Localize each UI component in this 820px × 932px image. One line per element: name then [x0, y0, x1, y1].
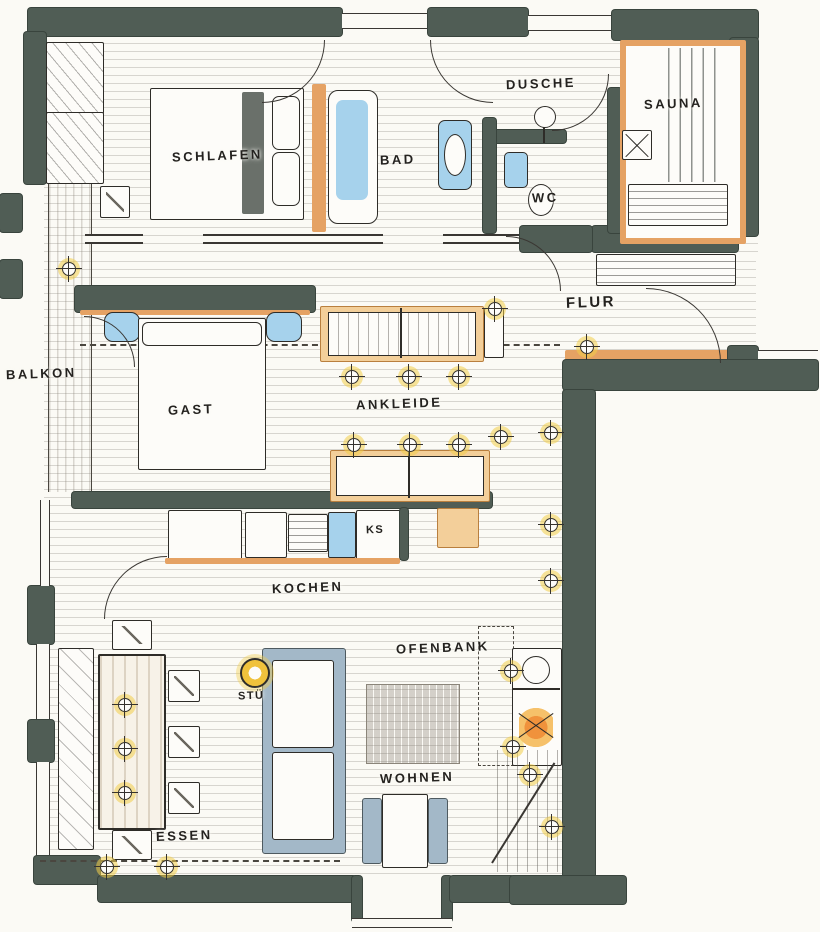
wall-bottom-1: [98, 876, 356, 902]
kitchen-cabinet-1: [168, 510, 242, 560]
stove-divider: [512, 688, 560, 690]
bed-gast-pillows: [142, 322, 262, 346]
dining-chair-head: [112, 620, 152, 650]
floor-plan: SCHLAFEN BAD DUSCHE SAUNA WC FLUR BALKON…: [0, 0, 820, 932]
ceiling-light: [504, 664, 518, 678]
dining-chair-1: [168, 670, 200, 702]
flur-sideboard: [596, 254, 736, 286]
wall-L-horizontal: [563, 360, 818, 390]
label-stuetze: STÜ: [238, 690, 265, 703]
room-label-wohnen: WOHNEN: [380, 769, 455, 787]
wall-corridor-2: [203, 234, 383, 244]
terrace-dash-line: [40, 860, 340, 862]
window-top-2: [528, 15, 612, 31]
bathtub-water: [336, 100, 368, 200]
wardrobe-ankleide-inner: [328, 312, 476, 356]
wood-wall-bad: [312, 84, 326, 232]
sauna-heater: [622, 130, 652, 160]
pillow-2: [272, 152, 300, 206]
dresser-divider: [408, 452, 410, 498]
ceiling-light: [580, 340, 594, 354]
chair-wohnen-1: [362, 798, 382, 864]
room-label-ankleide: ANKLEIDE: [356, 394, 443, 412]
ceiling-light: [523, 768, 537, 782]
pillow-1: [272, 96, 300, 150]
balcony-parapet-1: [0, 194, 22, 232]
wall-left-low-2: [28, 720, 54, 762]
ceiling-light: [118, 698, 132, 712]
ceiling-light: [345, 370, 359, 384]
kitchen-divider-wall: [400, 508, 408, 560]
room-label-wc: WC: [532, 190, 559, 206]
wall-bottom-2: [450, 876, 514, 902]
room-label-sauna: SAUNA: [644, 95, 703, 112]
wall-L-vertical: [563, 390, 595, 882]
ceiling-light: [544, 426, 558, 440]
room-label-balkon: BALKON: [6, 365, 77, 382]
room-label-kochen: KOCHEN: [272, 579, 344, 596]
dresser-inner: [336, 456, 484, 496]
room-label-bad: BAD: [380, 151, 416, 167]
room-label-dusche: DUSCHE: [506, 75, 576, 92]
dining-bench: [58, 648, 94, 850]
dining-chair-2: [168, 726, 200, 758]
room-label-essen: ESSEN: [156, 827, 213, 844]
window-left-3: [40, 500, 50, 586]
cooktop: [288, 514, 328, 552]
side-table-wohnen: [382, 794, 428, 868]
dining-chair-foot: [112, 830, 152, 860]
label-ks: KS: [366, 524, 385, 537]
stove-burner: [522, 656, 550, 684]
wall-top-right: [612, 10, 758, 40]
ceiling-light: [506, 740, 520, 754]
ceiling-light: [160, 860, 174, 874]
kitchen-wood-cabinet: [437, 508, 479, 548]
wall-corridor-1: [85, 234, 143, 244]
washbasin-bowl: [444, 134, 466, 176]
rug: [366, 684, 460, 764]
wall-wc-top: [490, 130, 566, 143]
support-column: [240, 658, 270, 688]
chair-wohnen-2: [428, 798, 448, 864]
counter-edge: [165, 558, 400, 564]
ceiling-light: [544, 574, 558, 588]
kitchen-cabinet-2: [245, 512, 287, 558]
nightstand-schlafen: [100, 186, 130, 218]
ceiling-light: [452, 438, 466, 452]
wardrobe-schlafen-2: [46, 112, 104, 184]
wall-bottom-right-block: [510, 876, 626, 904]
stove-flames: [519, 700, 553, 750]
window-bay: [352, 918, 452, 928]
window-top-1: [342, 13, 428, 29]
wardrobe-divider: [400, 308, 402, 358]
ceiling-light: [402, 370, 416, 384]
ceiling-light: [118, 786, 132, 800]
kitchen-sink: [328, 512, 356, 558]
wc-sink: [504, 152, 528, 188]
gast-side-table-2: [266, 312, 302, 342]
ceiling-light: [494, 430, 508, 444]
shower-stem: [543, 127, 545, 143]
wardrobe-schlafen-1: [46, 42, 104, 114]
wall-left-top: [24, 32, 46, 184]
room-label-flur: FLUR: [566, 293, 617, 312]
ceiling-light: [488, 302, 502, 316]
wall-left-low-1: [28, 586, 54, 644]
ceiling-light: [62, 262, 76, 276]
sauna-bench: [628, 184, 728, 226]
wall-top-left: [28, 8, 342, 36]
room-label-schlafen: SCHLAFEN: [172, 146, 263, 164]
ceiling-light: [100, 860, 114, 874]
ceiling-light: [403, 438, 417, 452]
wall-top-mid: [428, 8, 528, 36]
ceiling-light: [544, 518, 558, 532]
dining-chair-3: [168, 782, 200, 814]
window-left-1: [36, 644, 50, 720]
ceiling-light: [452, 370, 466, 384]
sofa-cushion-1: [272, 660, 334, 748]
balcony-parapet-2: [0, 260, 22, 298]
wall-gast-top: [75, 286, 315, 312]
sofa-cushion-2: [272, 752, 334, 840]
room-label-gast: GAST: [168, 401, 215, 418]
ceiling-light: [118, 742, 132, 756]
ceiling-light: [545, 820, 559, 834]
window-left-2: [36, 762, 50, 856]
sauna-slats: [658, 48, 722, 182]
ceiling-light: [347, 438, 361, 452]
wall-bad-right: [483, 118, 496, 233]
dining-table: [98, 654, 166, 830]
wall-bay-left: [352, 876, 362, 922]
